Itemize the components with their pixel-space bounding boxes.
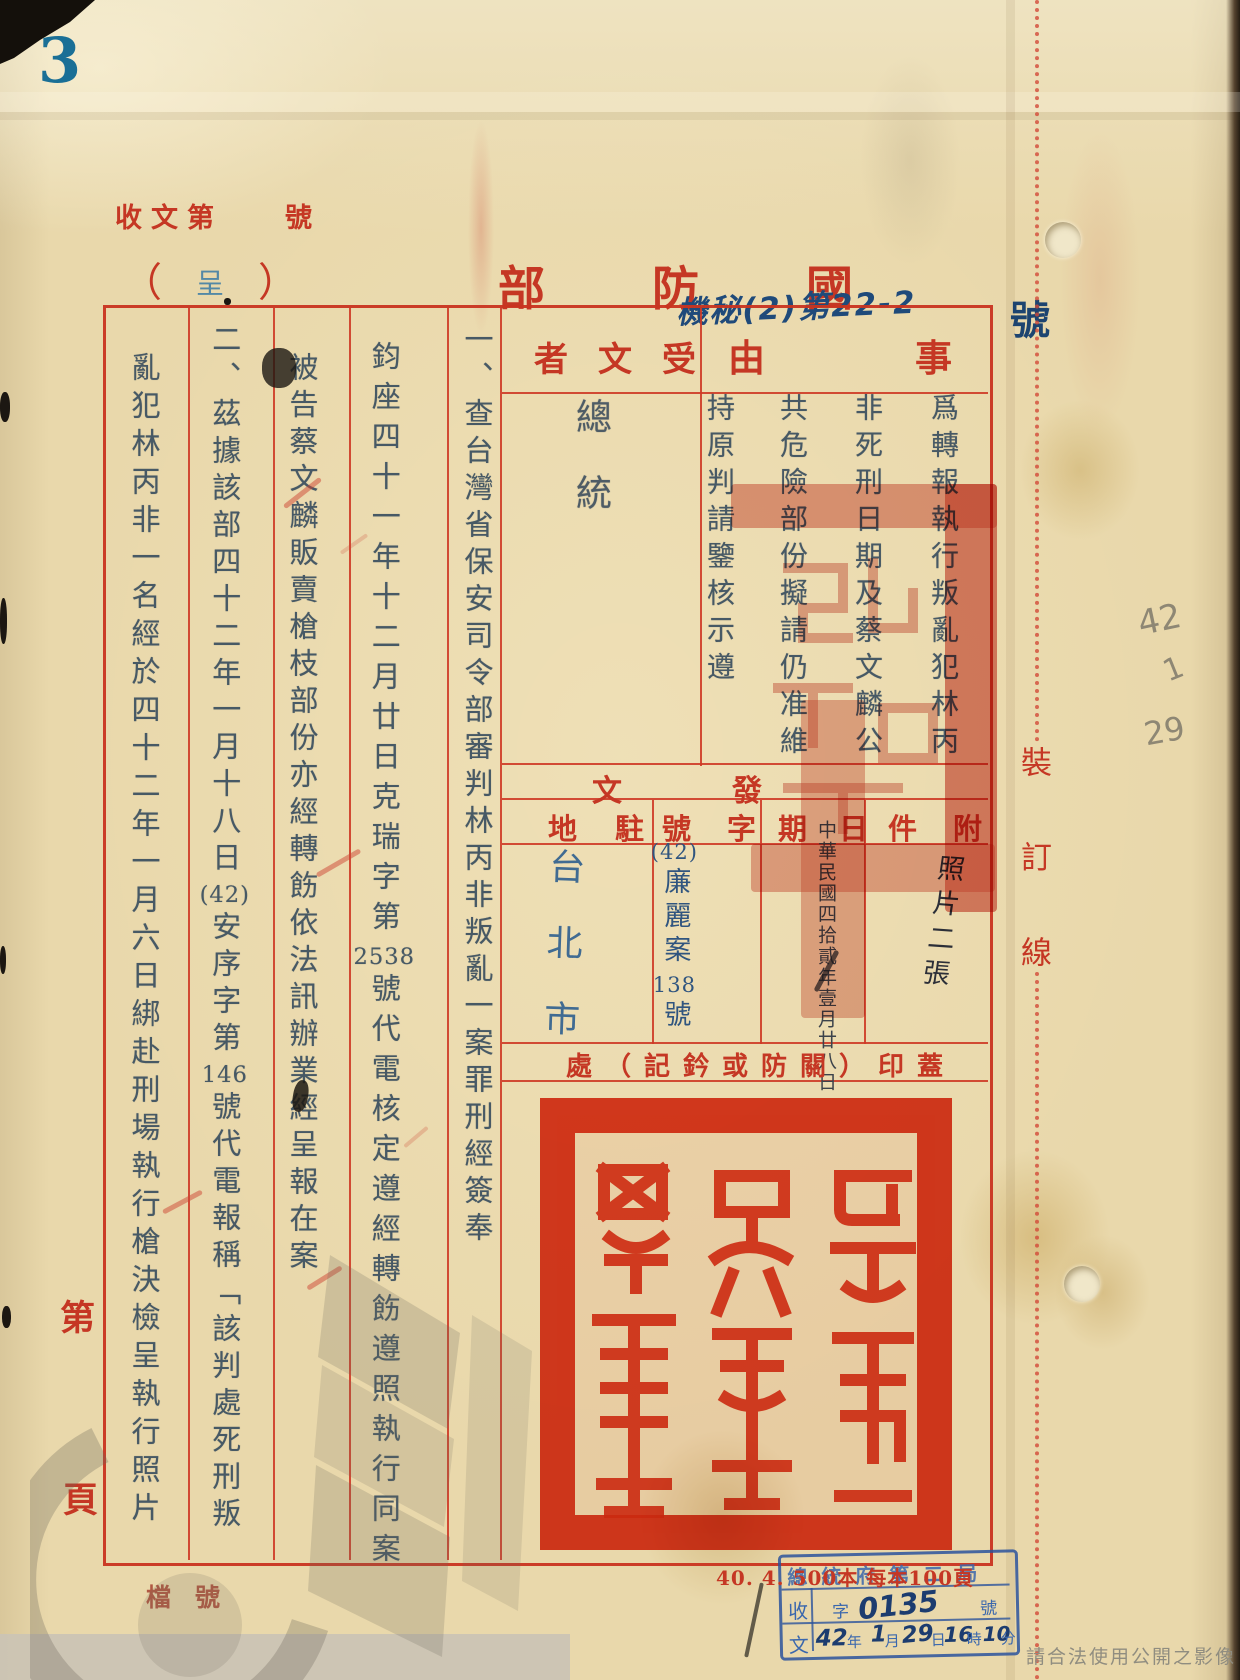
received-doc-label: 收文第 (115, 196, 223, 235)
receipt-hao-label: 號 (980, 1594, 998, 1619)
edge-mark (0, 392, 10, 422)
receipt-zi-label: 字 (832, 1597, 850, 1622)
scanned-archive-document: 3 收文第 號 （ 呈 ） 部防國 機秘(2)第22-2 號 由事 者文受 爲轉… (0, 0, 1240, 1680)
seal-area-label: 處（記鈐或防關）印蓋 (566, 1046, 956, 1083)
receipt-year: 42 (815, 1625, 848, 1652)
received-doc-suffix: 號 (285, 196, 312, 235)
recipient-value: 總統 (576, 398, 616, 550)
bleedthrough-ghost (860, 55, 960, 265)
recipient-header: 者文受 (534, 332, 726, 381)
crease-shadow (0, 112, 1240, 120)
ink-speck (224, 298, 231, 305)
pencil-note-month: 1 (1158, 650, 1189, 690)
receipt-day: 29 (901, 1620, 935, 1649)
partial-seal-impression (723, 478, 1013, 1026)
receipt-month-label: 月 (885, 1630, 900, 1651)
usage-notice: 請合法使用公開之影像 (1026, 1642, 1236, 1669)
pencil-note-day: 29 (1141, 709, 1188, 753)
paren-left: （ (122, 250, 162, 308)
receipt-hour-label: 時 (967, 1628, 982, 1649)
receipt-minute-label: 分 (1001, 1627, 1016, 1648)
body-column-3: 被告蔡文麟販賣槍枝部份亦經轉飭依法訊辦業經呈報在案 (287, 352, 323, 1277)
red-streak (468, 120, 494, 335)
form-rule (502, 392, 988, 394)
receipt-doc-char: 文 (789, 1629, 810, 1658)
pencil-slash (744, 1582, 764, 1657)
station-value-stamp: 台北市 (542, 847, 590, 1076)
archives-watermark (30, 1195, 590, 1680)
doc-type-cheng-stamp: 呈 (196, 262, 224, 302)
ref-value-stamp: (42)廉麗案138號 (666, 836, 698, 1034)
receipt-receive-char: 收 (788, 1595, 809, 1624)
pencil-note-year: 42 (1134, 596, 1185, 644)
right-edge-shadow (1226, 0, 1240, 1680)
print-run-note: 40. 4. 500本 每本100頁 (716, 1562, 974, 1591)
punch-hole (1045, 222, 1081, 258)
edge-mark (0, 598, 7, 644)
binding-line-label: 裝訂線 (1020, 746, 1056, 1031)
edge-mark (2, 1306, 11, 1328)
subject-header: 由事 (728, 328, 1102, 382)
paren-right: ） (258, 250, 298, 308)
binding-dotted-line (1035, 972, 1039, 1680)
stain (1060, 130, 1140, 430)
page-number: 3 (38, 24, 81, 97)
stamp-rule (811, 1588, 814, 1651)
body-column-1: 一、查台灣省保安司令部審判林丙非叛亂一案罪刑經簽奉 (462, 324, 498, 1249)
receipt-year-label: 年 (847, 1631, 862, 1652)
crease-highlight (0, 92, 1240, 112)
official-seal-impression (540, 1098, 952, 1550)
punch-hole (1064, 1266, 1100, 1302)
binding-dotted-line (1035, 0, 1039, 742)
edge-mark (0, 946, 6, 974)
